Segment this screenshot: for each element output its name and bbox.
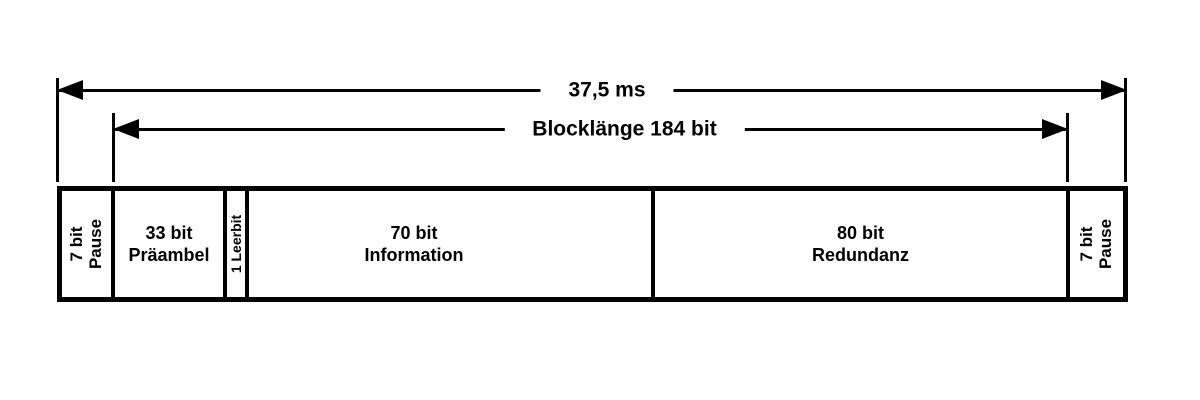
extension-line-inner-right [1066, 113, 1069, 182]
segment-label: 33 bit Präambel [128, 222, 209, 266]
dimension-label-total: 37,5 ms [540, 77, 673, 102]
arrowhead-left-icon [57, 80, 83, 100]
segment-label: 7 bit Pause [1078, 219, 1116, 269]
segment-label: 80 bit Redundanz [812, 222, 909, 266]
segment-label-line2: Information [365, 244, 464, 266]
segment-praeambel: 33 bit Präambel [115, 191, 227, 297]
segment-label-line2: Pause [87, 219, 106, 269]
segment-pause-left: 7 bit Pause [62, 191, 115, 297]
extension-line-outer-left [56, 78, 59, 182]
frame-bar: 7 bit Pause 33 bit Präambel 1 Leerbit 70… [57, 186, 1128, 302]
segment-label-line1: 80 bit [812, 222, 909, 244]
segment-pause-right: 7 bit Pause [1070, 191, 1123, 297]
segment-label-line1: 70 bit [365, 222, 464, 244]
segment-label-line2: Präambel [128, 244, 209, 266]
segment-redundanz: 80 bit Redundanz [655, 191, 1070, 297]
segment-label-line2: Pause [1097, 219, 1116, 269]
segment-label-line1: 7 bit [1078, 219, 1097, 269]
extension-line-outer-right [1124, 78, 1127, 182]
arrowhead-left-icon [113, 119, 139, 139]
segment-label: 1 Leerbit [229, 215, 243, 273]
segment-label: 70 bit Information [365, 222, 464, 266]
segment-label-line1: 7 bit [68, 219, 87, 269]
segment-information: 70 bit Information [249, 191, 655, 297]
arrowhead-right-icon [1042, 119, 1068, 139]
frame-structure-diagram: 37,5 ms Blocklänge 184 bit 7 bit Pause 3… [0, 0, 1200, 400]
extension-line-inner-left [112, 113, 115, 182]
segment-label-line2: Redundanz [812, 244, 909, 266]
segment-label-line1: 33 bit [128, 222, 209, 244]
segment-label: 7 bit Pause [68, 219, 106, 269]
segment-label-line1: 1 Leerbit [229, 215, 243, 273]
segment-leerbit: 1 Leerbit [227, 191, 249, 297]
dimension-label-block: Blocklänge 184 bit [504, 116, 744, 141]
